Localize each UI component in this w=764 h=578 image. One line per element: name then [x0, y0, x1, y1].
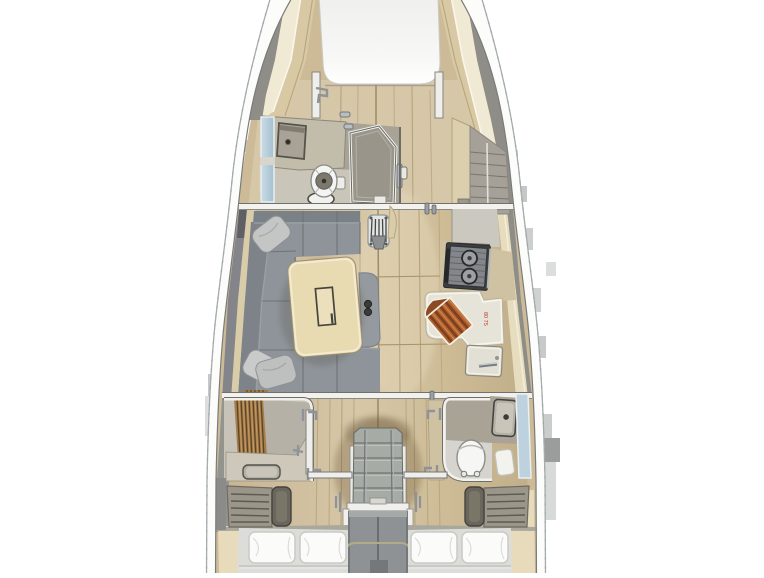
svg-text:80 75: 80 75 [482, 312, 488, 326]
